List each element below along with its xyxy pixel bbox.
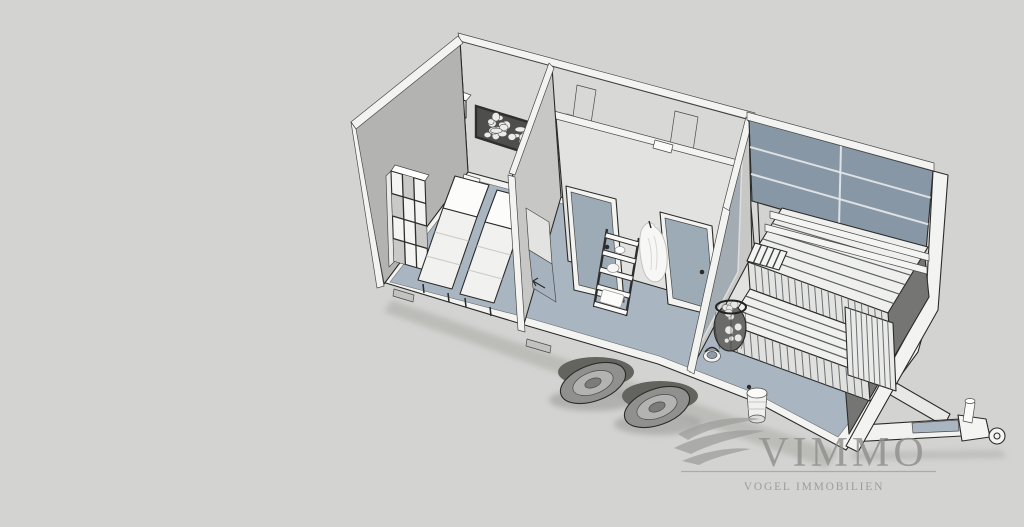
brand-logo: VIMMO VOGEL IMMOBILIEN [674, 418, 936, 493]
brand-subtitle: VOGEL IMMOBILIEN [744, 481, 884, 493]
door-handle-2 [700, 270, 705, 275]
cube-shelf [386, 165, 429, 271]
floorplan-rendering: VIMMO VOGEL IMMOBILIEN [0, 0, 1024, 527]
rendering-canvas: VIMMO VOGEL IMMOBILIEN [0, 0, 1024, 527]
water-bucket [747, 385, 767, 423]
interior-door-1 [566, 186, 624, 302]
brand-name: VIMMO [758, 430, 927, 476]
